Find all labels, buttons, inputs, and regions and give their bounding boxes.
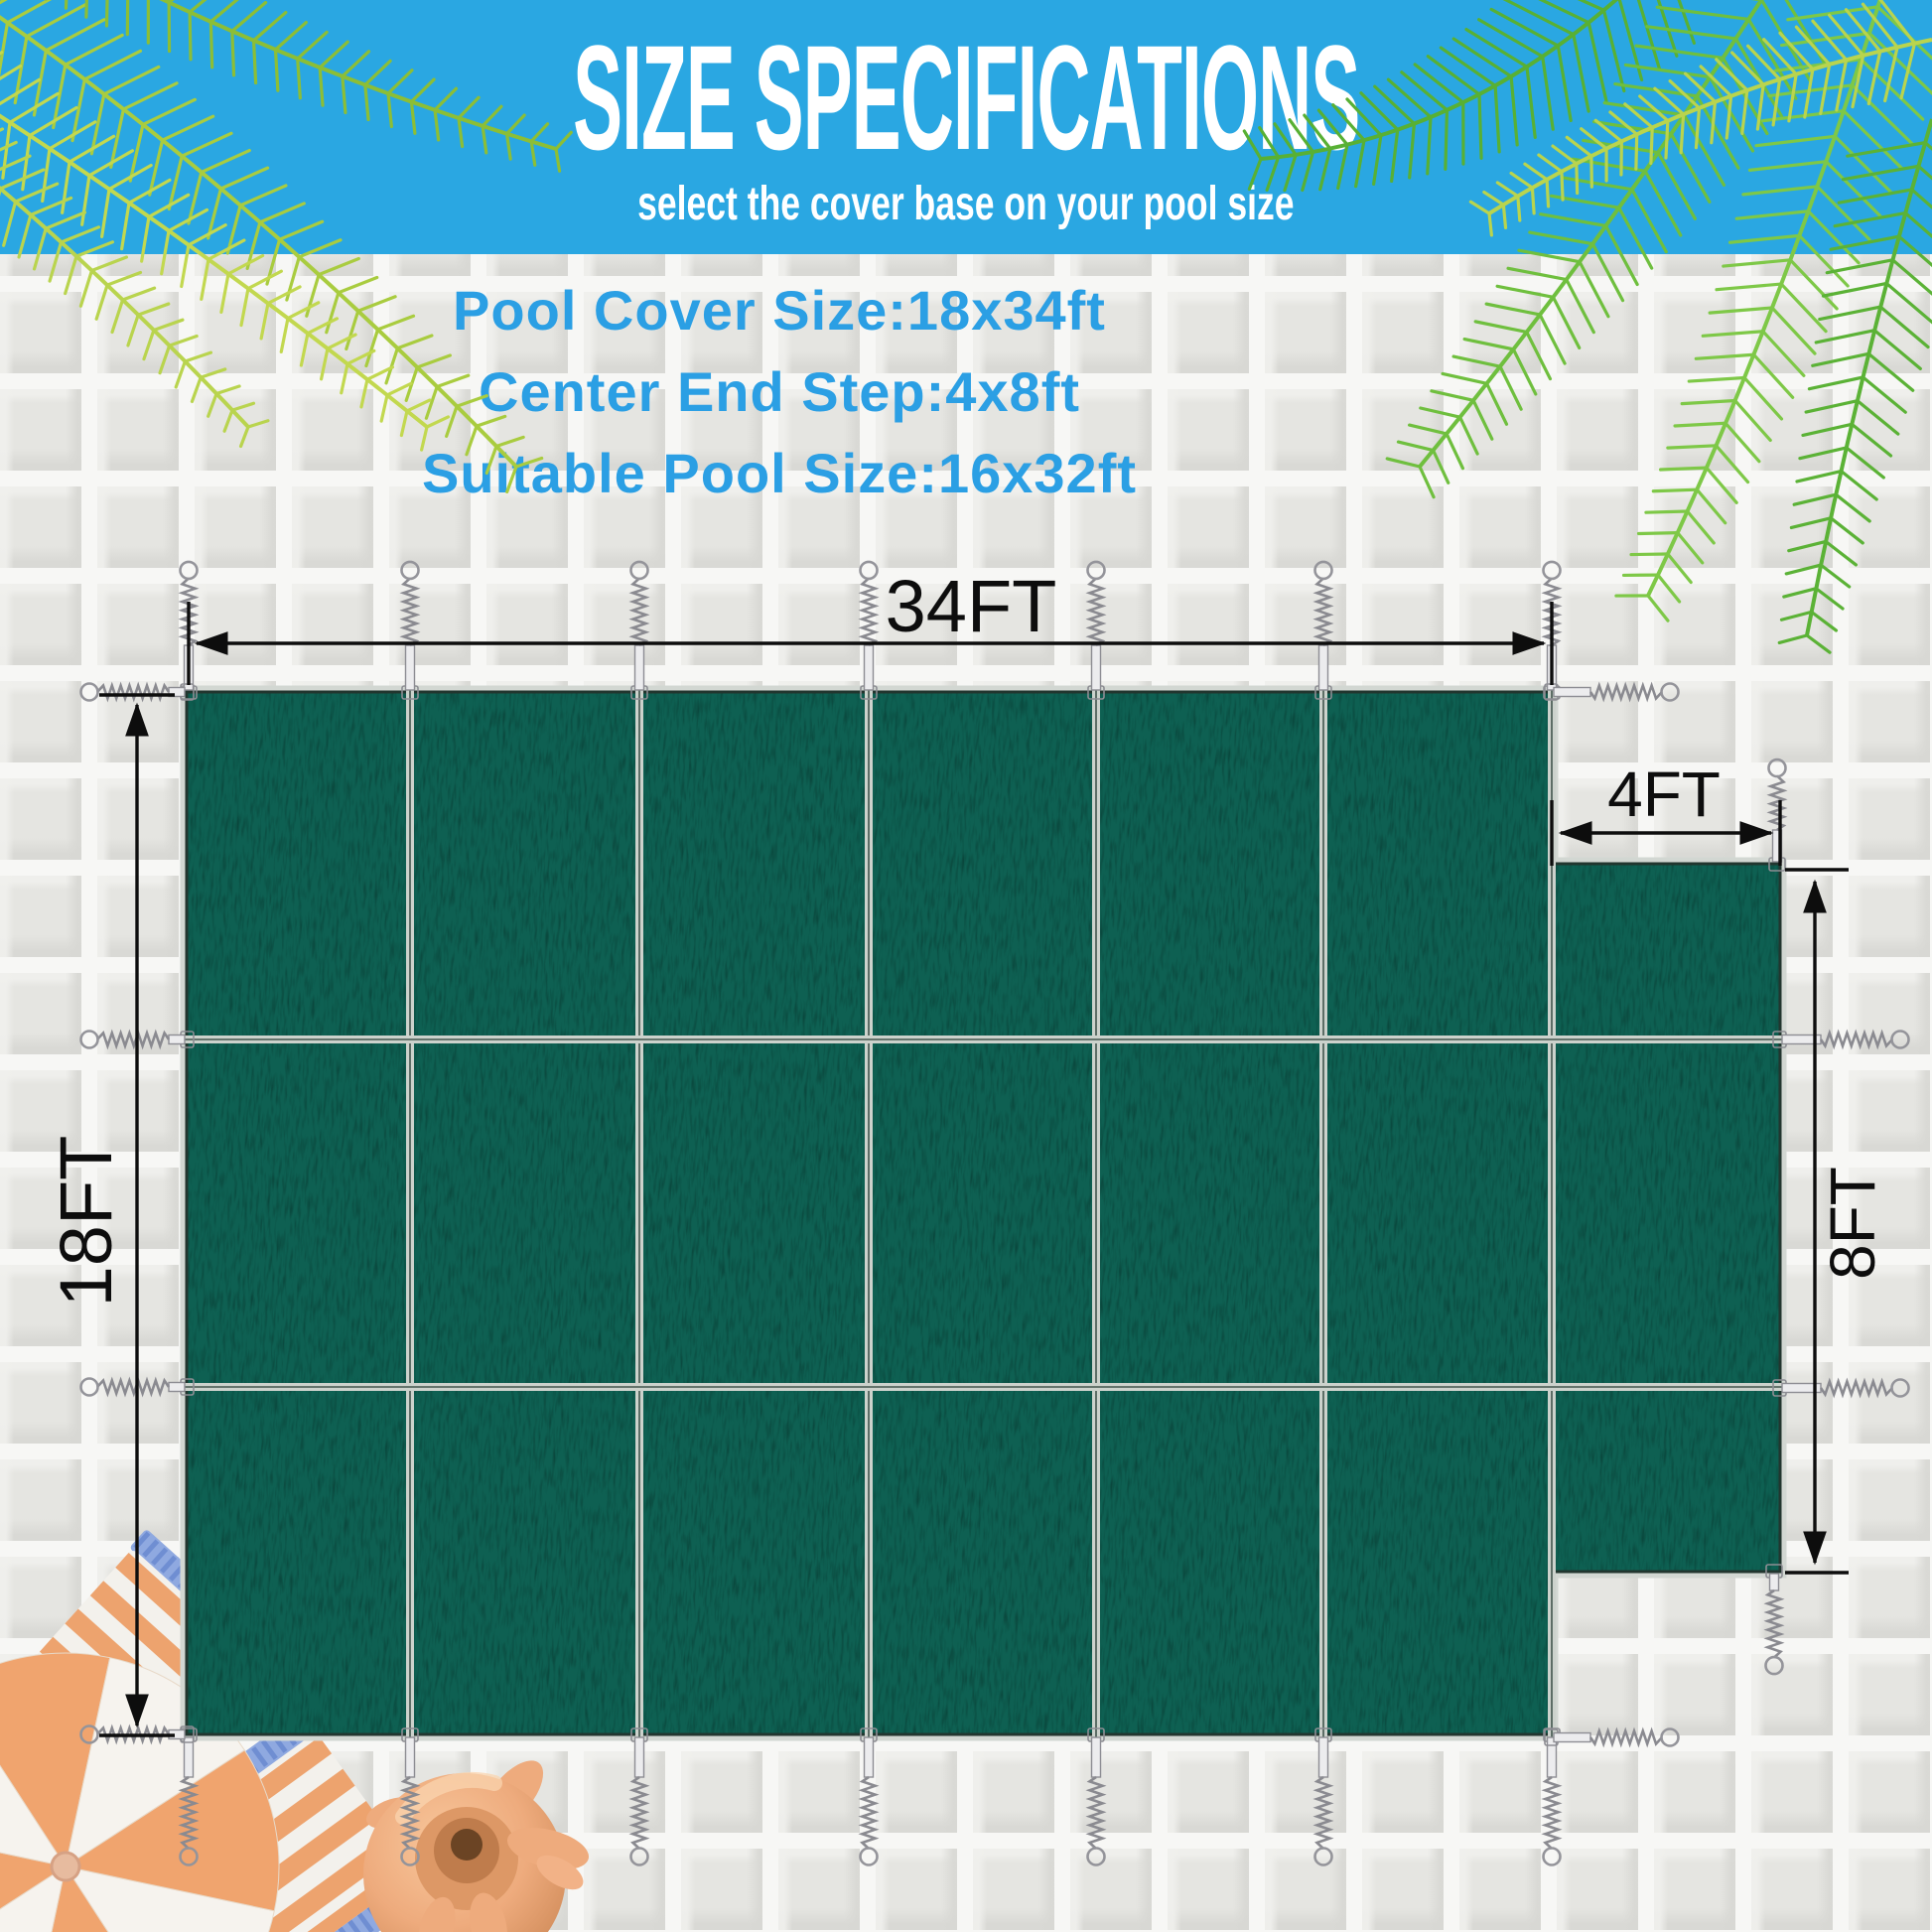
palm-leaves-top-left-icon <box>0 0 571 491</box>
palm-leaves-top-right-icon <box>1244 0 1932 652</box>
page: SIZE SPECIFICATIONS select the cover bas… <box>0 0 1932 1932</box>
palm-leaves <box>0 0 1932 1932</box>
